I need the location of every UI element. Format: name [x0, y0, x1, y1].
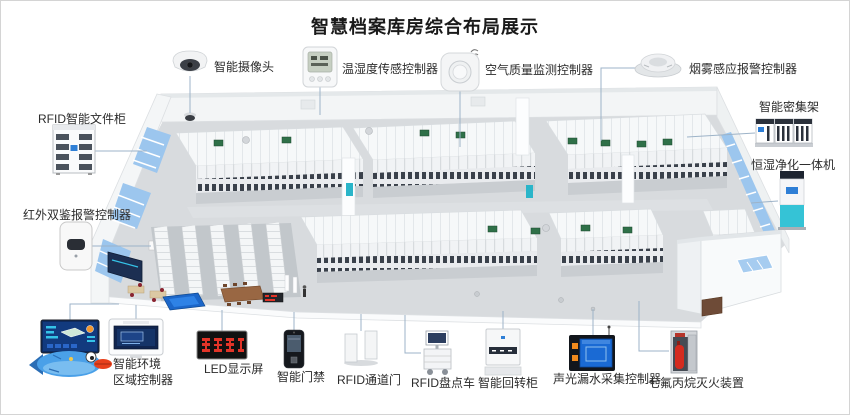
- led-display-icon: [197, 331, 247, 359]
- label-compact-shelving: 智能密集架: [759, 98, 819, 115]
- shelving-block-back-right: [546, 114, 727, 195]
- temp-humidity-icon: [303, 47, 337, 87]
- fire-suppression-icon: [671, 331, 697, 373]
- rfid-cart-icon: [424, 331, 451, 375]
- wall-fixture: [301, 100, 315, 109]
- shelf-end-unit: [526, 185, 533, 198]
- label-fire-suppression: 七氟丙烷灭火装置: [648, 374, 744, 391]
- env-controller-icon: [109, 319, 163, 358]
- fish-mascot: [29, 351, 112, 377]
- label-led-display: LED显示屏: [204, 360, 263, 377]
- shelving-block-back-left: [176, 127, 363, 204]
- label-env-controller: 智能环境 区域控制器: [113, 356, 173, 388]
- label-temp-humidity: 温湿度传感控制器: [342, 60, 438, 77]
- leak-controller-icon: [569, 326, 615, 372]
- label-rfid-cart: RFID盘点车: [411, 374, 475, 391]
- label-air-quality: 空气质量监测控制器: [485, 61, 593, 78]
- indoor-dome-camera: [185, 115, 195, 121]
- person-figure: [303, 289, 306, 297]
- rotary-cabinet-icon: [485, 329, 521, 375]
- label-smart-camera: 智能摄像头: [214, 58, 274, 75]
- label-rfid-gate: RFID通道门: [337, 371, 401, 388]
- infrared-sensor-icon: [60, 222, 92, 270]
- floor-sensor: [475, 292, 480, 297]
- air-quality-icon: [441, 50, 479, 91]
- label-rotary-cabinet: 智能回转柜: [478, 374, 538, 391]
- inner-room: [677, 230, 781, 316]
- rfid-gate-icon: [344, 331, 378, 366]
- label-rfid-cabinet: RFID智能文件柜: [38, 110, 126, 127]
- label-infrared-alarm: 红外双鉴报警控制器: [23, 206, 131, 223]
- access-control-icon: [284, 330, 304, 368]
- label-humidity-purifier: 恒湿净化一体机: [751, 156, 835, 173]
- rfid-cabinet-icon: [53, 125, 95, 175]
- door-gate-post: [293, 277, 297, 293]
- layout-diagram: 智慧档案库房综合布局展示: [0, 0, 850, 415]
- label-access-control: 智能门禁: [277, 368, 325, 385]
- floor-sensor: [559, 298, 564, 303]
- label-smoke-alarm: 烟雾感应报警控制器: [689, 60, 797, 77]
- wall-fixture: [471, 97, 485, 106]
- shelving-block-back-mid: [353, 121, 535, 198]
- shelf-end-unit: [346, 183, 353, 196]
- pillar: [516, 98, 529, 155]
- shelving-block-mid-right: [549, 209, 663, 277]
- inner-room-door: [702, 297, 722, 316]
- smart-camera-icon: [173, 51, 207, 71]
- humidity-purifier-icon: [778, 171, 806, 230]
- smoke-alarm-icon: [635, 54, 681, 77]
- label-leak-controller: 声光漏水采集控制器: [553, 370, 661, 387]
- shelving-block-mid-left: [301, 210, 537, 283]
- pillar: [622, 155, 634, 203]
- compact-shelving-icon: [755, 119, 813, 147]
- door-gate-post: [285, 275, 289, 291]
- conference-table: [221, 286, 264, 302]
- office-desk: [128, 286, 144, 293]
